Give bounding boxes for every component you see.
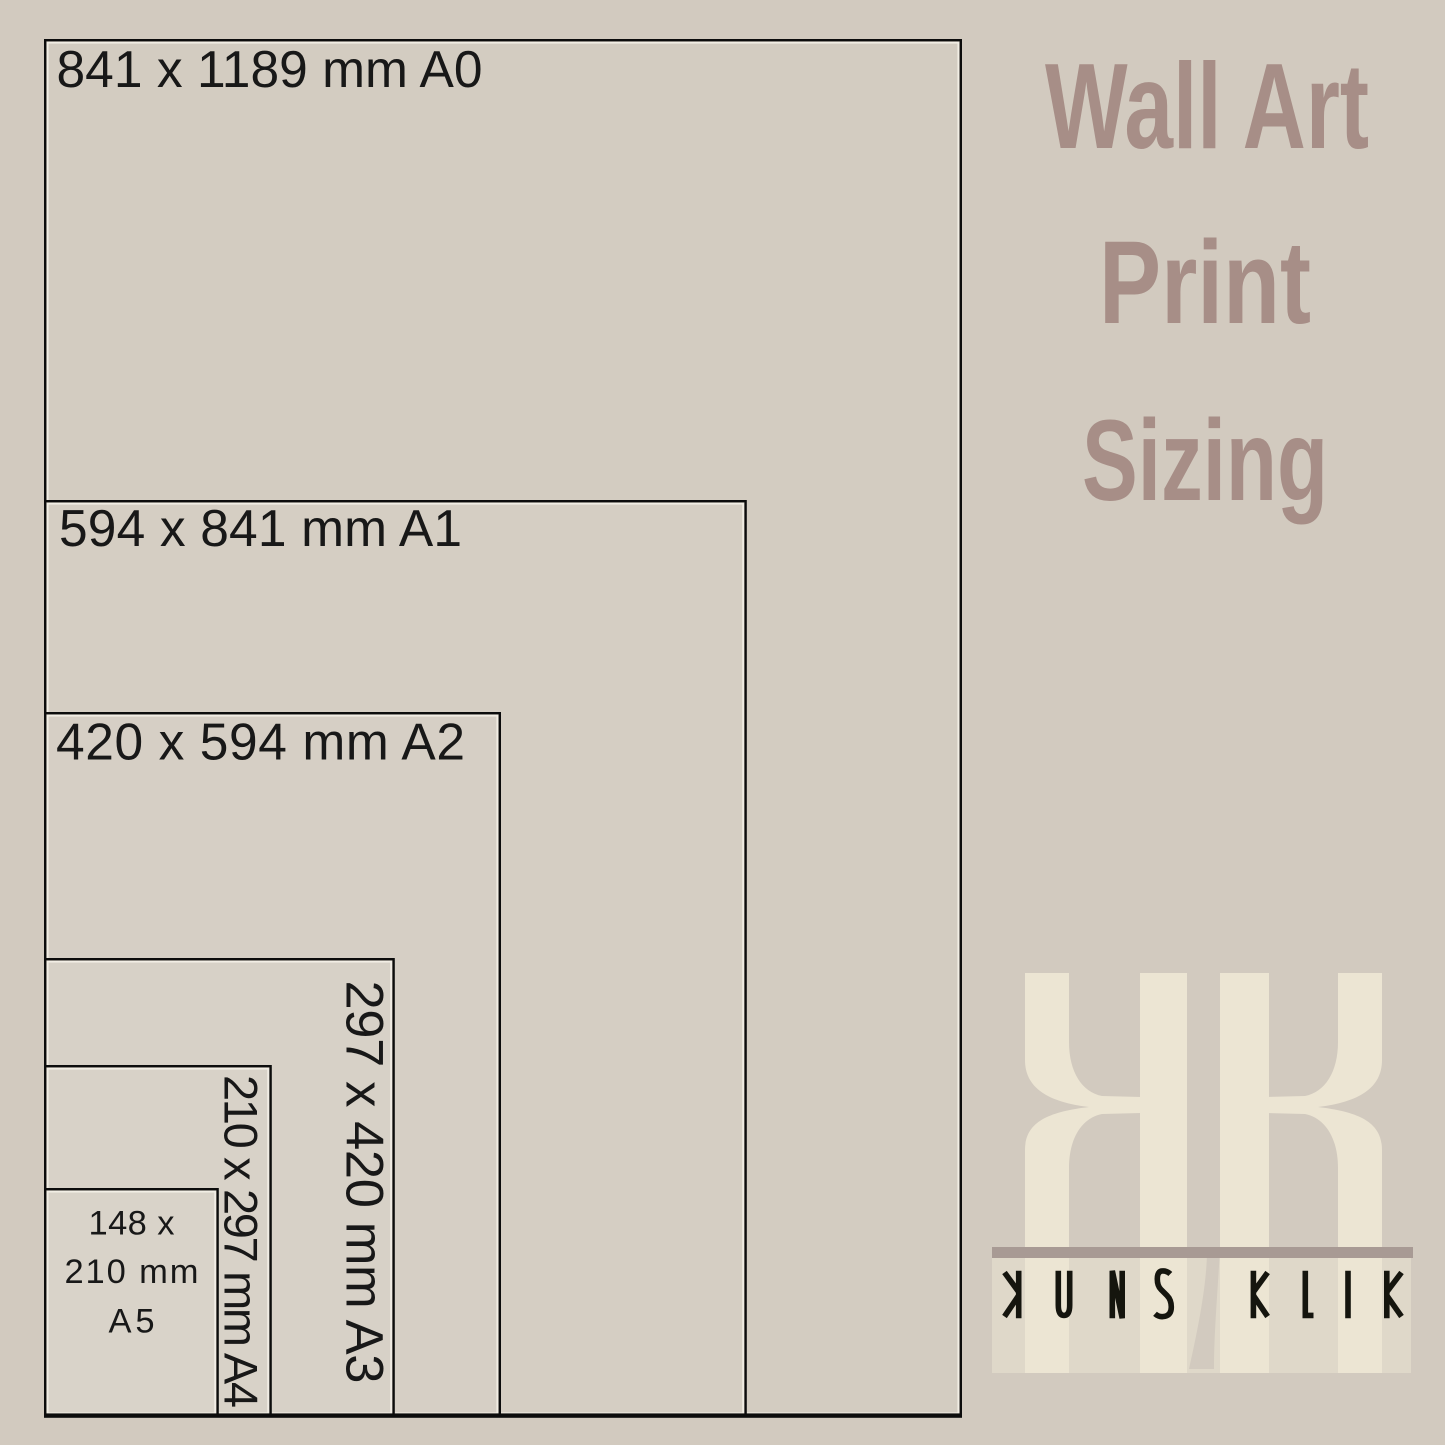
svg-text:841 x 1189 mm A0: 841 x 1189 mm A0 bbox=[57, 40, 483, 98]
svg-text:Sizing: Sizing bbox=[1082, 397, 1328, 525]
svg-text:Print: Print bbox=[1099, 217, 1311, 349]
svg-text:148 x: 148 x bbox=[89, 1205, 175, 1243]
svg-text:297 x 420 mm A3: 297 x 420 mm A3 bbox=[335, 981, 394, 1384]
svg-text:210 mm: 210 mm bbox=[65, 1253, 199, 1291]
svg-text:A5: A5 bbox=[109, 1303, 155, 1341]
svg-text:420 x 594 mm A2: 420 x 594 mm A2 bbox=[56, 713, 465, 771]
svg-text:594 x 841 mm A1: 594 x 841 mm A1 bbox=[59, 499, 462, 557]
svg-text:Wall Art: Wall Art bbox=[1045, 38, 1369, 174]
svg-text:210 x 297 mm A4: 210 x 297 mm A4 bbox=[215, 1075, 268, 1408]
